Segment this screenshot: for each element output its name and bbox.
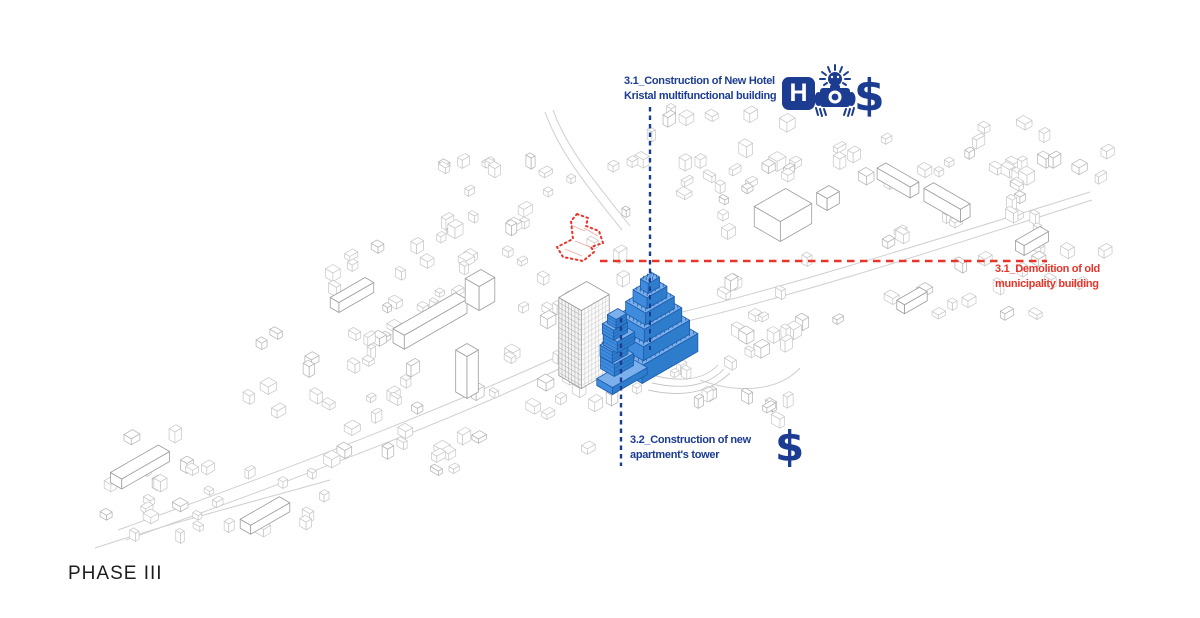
city-map-drawing: [0, 0, 1200, 618]
hotel-annotation-line1: 3.1_Construction of New Hotel: [624, 74, 776, 89]
phase-3-masterplan-diagram: 3.1_Construction of New Hotel Kristal mu…: [0, 0, 1200, 618]
hotel-h-icon: H: [782, 77, 815, 110]
demolition-annotation-line2: municipality building: [995, 277, 1100, 292]
dollar-icon-top: $: [854, 74, 885, 118]
demolition-outline: [557, 214, 603, 261]
apartments-annotation: 3.2_Construction of new apartment's towe…: [630, 433, 751, 462]
existing-tower-building: [559, 282, 609, 389]
hotel-annotation-line2: Kristal multifunctional building: [624, 89, 776, 104]
phase-title: PHASE III: [68, 563, 163, 585]
apartments-annotation-line1: 3.2_Construction of new: [630, 433, 751, 448]
demolition-annotation: 3.1_Demolition of old municipality build…: [995, 262, 1100, 291]
hotel-h-letter: H: [789, 81, 807, 106]
dollar-icon-bottom: $: [775, 426, 804, 468]
tourist-camera-icon: [813, 64, 857, 122]
hotel-annotation: 3.1_Construction of New Hotel Kristal mu…: [624, 74, 776, 103]
demolition-annotation-line1: 3.1_Demolition of old: [995, 262, 1100, 277]
apartments-annotation-line2: apartment's tower: [630, 448, 751, 463]
